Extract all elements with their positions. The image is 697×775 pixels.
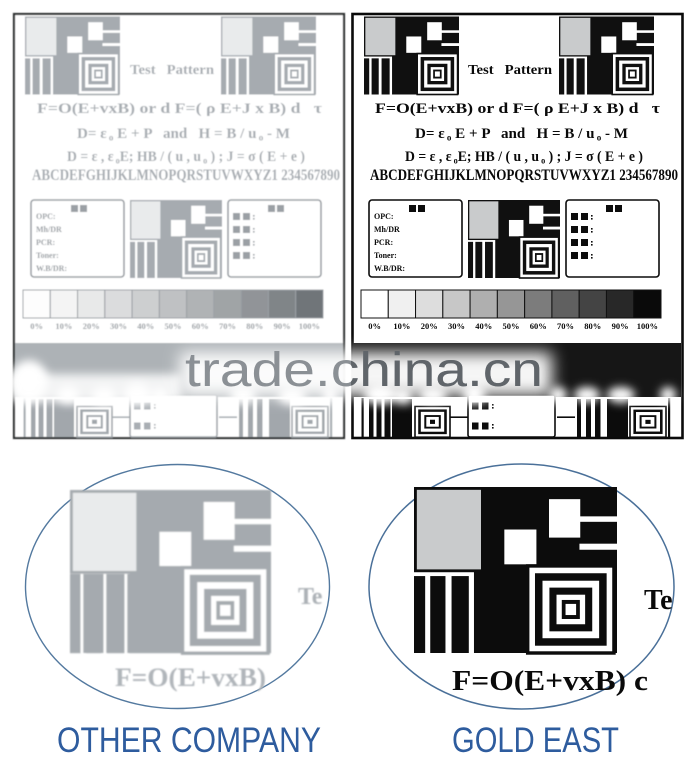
svg-text:ABCDEFGHIJKLMNOPQRSTUVWXYZ1 23: ABCDEFGHIJKLMNOPQRSTUVWXYZ1 234567890 <box>32 167 340 184</box>
svg-text:100%: 100% <box>637 321 658 331</box>
svg-text:GOLD EAST: GOLD EAST <box>452 721 619 760</box>
svg-text:D = ε , ε oE; HB / ( u , u o ): D = ε , ε oE; HB / ( u , u o ) ; J = σ (… <box>405 149 643 166</box>
svg-text:20%: 20% <box>421 321 438 331</box>
svg-text:70%: 70% <box>219 321 236 331</box>
svg-text:40%: 40% <box>137 321 154 331</box>
svg-text:100%: 100% <box>299 321 320 331</box>
svg-text:PCR:: PCR: <box>374 238 393 247</box>
svg-text:Mh/DR: Mh/DR <box>374 225 400 234</box>
svg-text:0%: 0% <box>368 321 381 331</box>
svg-text:30%: 30% <box>110 321 127 331</box>
svg-text:F=O(E+vxB) c: F=O(E+vxB) c <box>452 666 648 697</box>
svg-text:D = ε , ε oE; HB / ( u , u o ): D = ε , ε oE; HB / ( u , u o ) ; J = σ (… <box>67 149 305 166</box>
svg-text:W.B/DR:: W.B/DR: <box>36 264 67 273</box>
svg-text:0%: 0% <box>30 321 43 331</box>
svg-text:F=O(E+vxB): F=O(E+vxB) <box>115 663 266 692</box>
svg-text:Te: Te <box>644 585 673 616</box>
svg-text:W.B/DR:: W.B/DR: <box>374 264 405 273</box>
svg-text:Toner:: Toner: <box>36 251 59 260</box>
svg-text:50%: 50% <box>165 321 182 331</box>
svg-text:F=O(E+vxB) or d F=( ρ E+J x B): F=O(E+vxB) or d F=( ρ E+J x B) d τ <box>375 101 660 117</box>
svg-text:40%: 40% <box>475 321 492 331</box>
svg-text:30%: 30% <box>448 321 465 331</box>
svg-text:Test Pattern: Test Pattern <box>130 63 214 78</box>
svg-text:80%: 80% <box>584 321 601 331</box>
svg-text:PCR:: PCR: <box>36 238 55 247</box>
svg-text:60%: 60% <box>530 321 547 331</box>
svg-text:Te: Te <box>298 584 323 610</box>
svg-text:OPC:: OPC: <box>36 212 56 221</box>
svg-text:60%: 60% <box>192 321 209 331</box>
svg-text:20%: 20% <box>83 321 100 331</box>
svg-text:70%: 70% <box>557 321 574 331</box>
svg-text:10%: 10% <box>393 321 410 331</box>
svg-text:F=O(E+vxB) or d F=( ρ E+J x B): F=O(E+vxB) or d F=( ρ E+J x B) d τ <box>37 101 322 117</box>
svg-text:90%: 90% <box>612 321 629 331</box>
svg-text:Test Pattern: Test Pattern <box>468 63 552 78</box>
svg-text:ABCDEFGHIJKLMNOPQRSTUVWXYZ1 23: ABCDEFGHIJKLMNOPQRSTUVWXYZ1 234567890 <box>370 167 678 184</box>
svg-text:10%: 10% <box>55 321 72 331</box>
svg-text:80%: 80% <box>246 321 263 331</box>
svg-text:50%: 50% <box>503 321 520 331</box>
svg-text:Mh/DR: Mh/DR <box>36 225 62 234</box>
svg-text:OTHER COMPANY: OTHER COMPANY <box>57 721 321 760</box>
svg-text:90%: 90% <box>274 321 291 331</box>
svg-text:Toner:: Toner: <box>374 251 397 260</box>
svg-text:OPC:: OPC: <box>374 212 394 221</box>
